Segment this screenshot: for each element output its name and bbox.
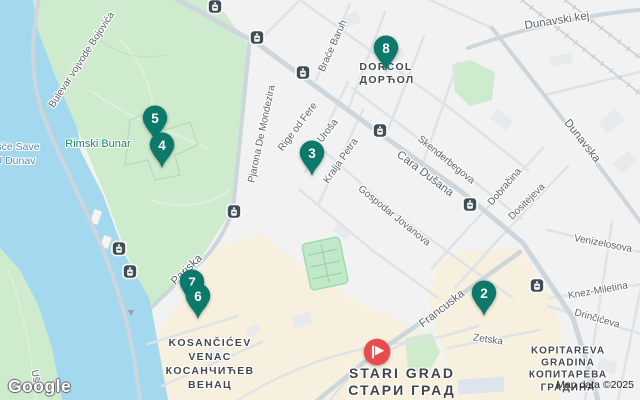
transit-stop-icon[interactable]	[372, 123, 388, 144]
street-label: Gospodar Jovanova	[356, 184, 432, 249]
street-label: Venizelosova	[573, 233, 633, 255]
svg-text:5: 5	[151, 111, 159, 126]
water-label: U Dunav	[0, 155, 35, 167]
map-overlay: Bulevar vojvode BojovićaPjarona De Monde…	[0, 0, 640, 400]
transit-stop-icon[interactable]	[122, 264, 138, 285]
transit-stop-icon[interactable]	[207, 0, 223, 20]
street-label: Knez-Miletina	[567, 280, 629, 301]
neighborhood-label: КОСАНЧИЋЕВ	[166, 365, 255, 377]
street-label: Skenderbegova	[415, 134, 476, 187]
transit-stop-icon[interactable]	[226, 204, 242, 225]
neighborhood-label: СТАРИ ГРАД	[348, 382, 455, 398]
destination-marker[interactable]	[363, 338, 391, 371]
map-data-attribution: Map data ©2025	[556, 379, 634, 391]
street-label: Cara Dušana	[394, 149, 455, 199]
transit-stop-icon[interactable]	[111, 241, 127, 262]
street-label: Zetska	[472, 332, 503, 347]
svg-text:3: 3	[308, 146, 316, 161]
street-label: Dositejeva	[507, 182, 548, 223]
street-label: Braće Baruh	[317, 18, 350, 73]
street-label: Dunavski kej	[524, 10, 590, 32]
transit-stop-icon[interactable]	[295, 65, 311, 86]
neighborhood-label: GRADINA	[541, 358, 595, 369]
water-label: šće Save	[0, 141, 40, 153]
map-pin-3[interactable]: 3	[298, 140, 326, 183]
svg-text:4: 4	[158, 138, 166, 153]
transit-stop-icon[interactable]	[529, 278, 545, 299]
map-pin-6[interactable]: 6	[184, 283, 212, 326]
google-logo[interactable]: Google	[8, 376, 71, 397]
street-label: Drinčićeva	[573, 307, 621, 330]
street-label: Francuska	[417, 288, 467, 331]
street-label: Dobračina	[486, 166, 524, 208]
street-label: Dunavska	[562, 117, 603, 165]
map-canvas[interactable]: Bulevar vojvode BojovićaPjarona De Monde…	[0, 0, 640, 400]
map-pin-2[interactable]: 2	[470, 280, 498, 323]
neighborhood-label: KOPITAREVA	[531, 346, 605, 357]
street-label: Kralja Petra	[322, 136, 361, 185]
neighborhood-label: ВЕНАЦ	[188, 379, 232, 391]
transit-stop-icon[interactable]	[462, 197, 478, 218]
svg-text:8: 8	[382, 41, 390, 56]
map-pin-8[interactable]: 8	[372, 35, 400, 78]
neighborhood-label: KOSANČIĆEV	[168, 337, 251, 349]
park-label: Rimski Bunar	[65, 138, 130, 150]
map-pin-4[interactable]: 4	[148, 132, 176, 175]
street-label: Bulevar vojvode Bojovića	[47, 10, 117, 110]
street-label: Pjarona De Mondezira	[246, 84, 277, 184]
svg-text:6: 6	[194, 289, 202, 304]
transit-stop-icon[interactable]	[249, 30, 265, 51]
neighborhood-label: VENAC	[188, 351, 231, 363]
svg-text:2: 2	[480, 286, 488, 301]
one-way-arrow-icon	[128, 310, 134, 316]
